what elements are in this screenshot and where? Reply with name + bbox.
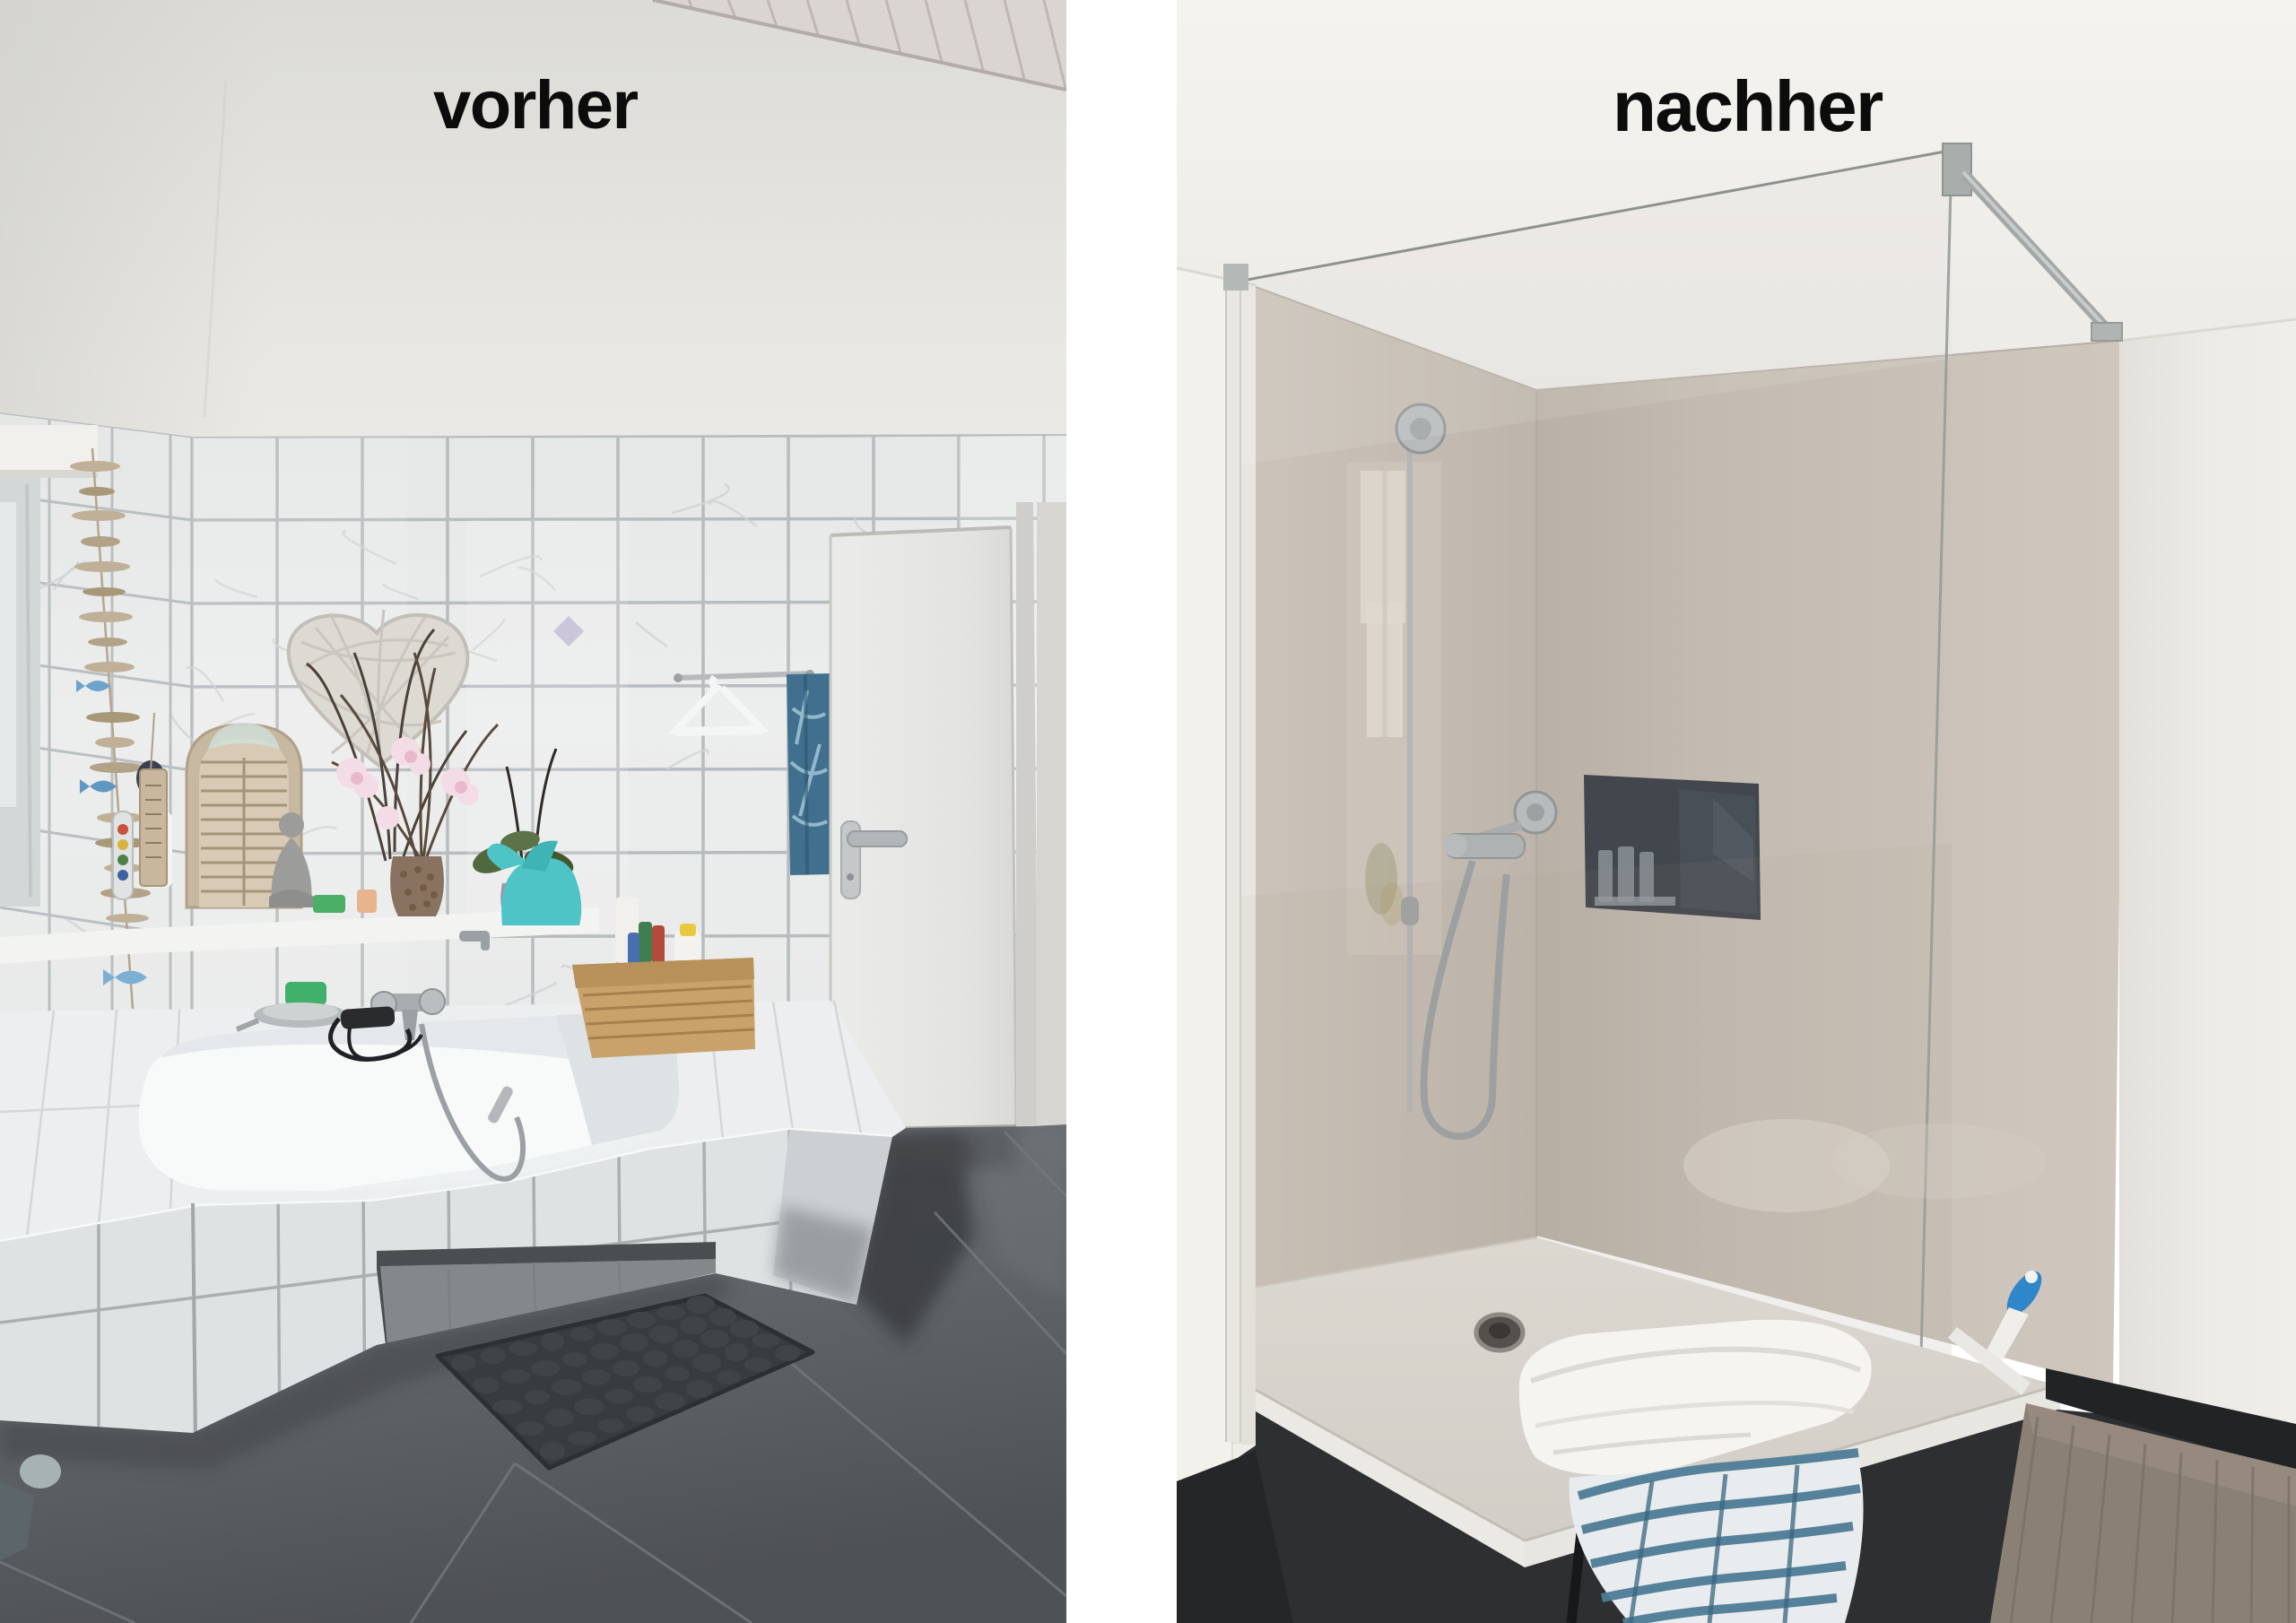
svg-text:nachher: nachher [1613,66,1883,146]
svg-text:vorher: vorher [433,67,638,143]
